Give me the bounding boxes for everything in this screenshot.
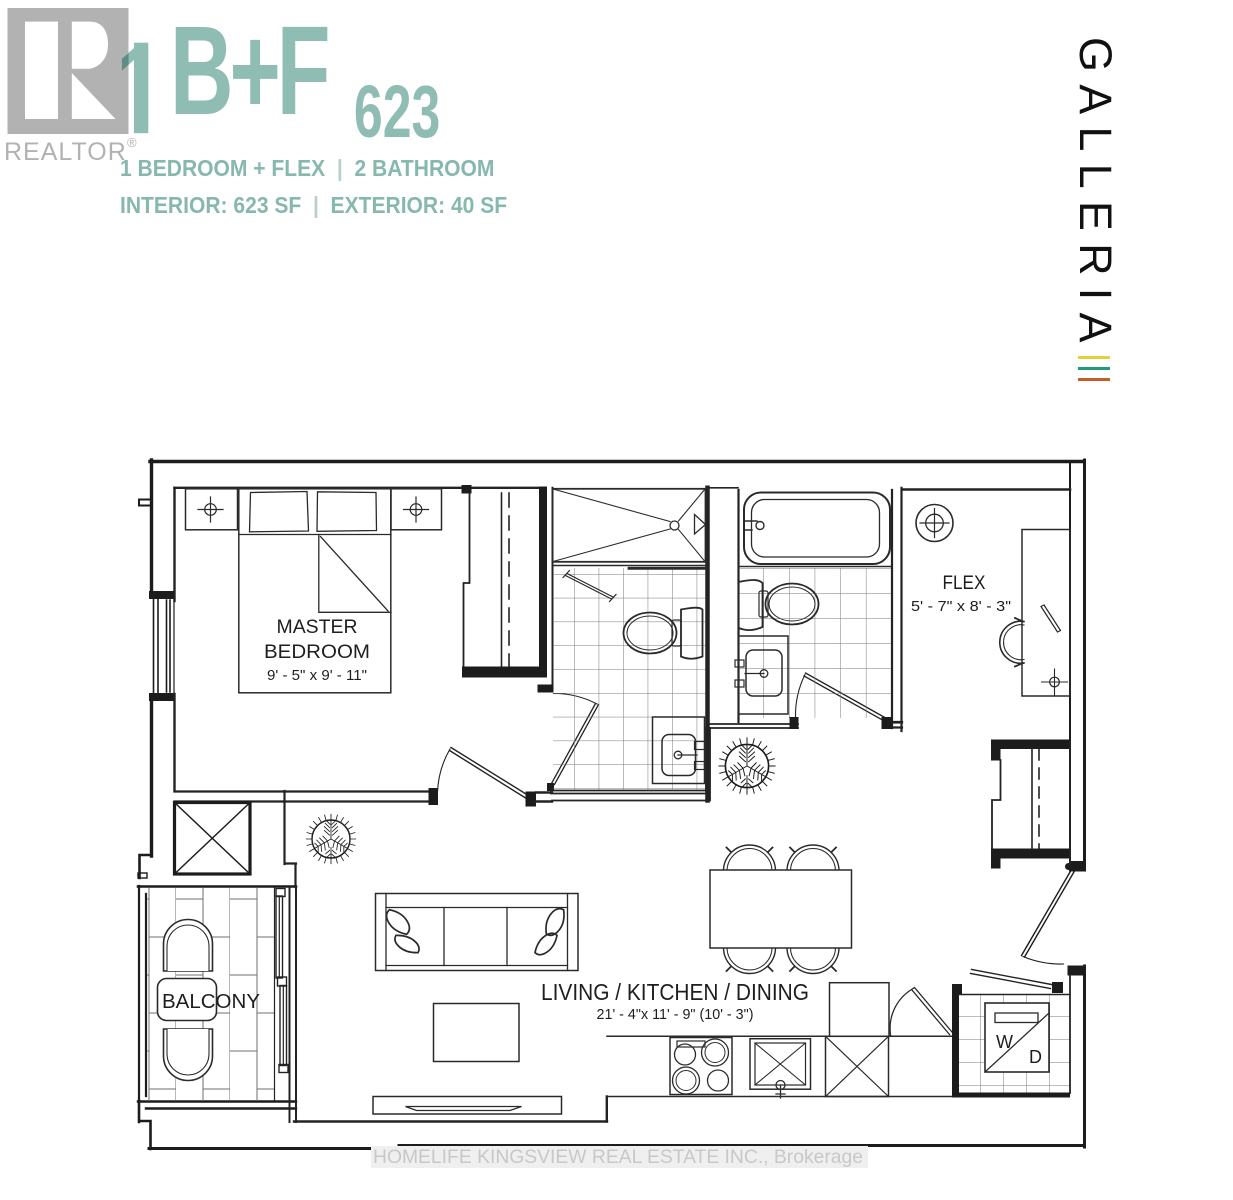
svg-text:5' - 7" x 8' - 3": 5' - 7" x 8' - 3" xyxy=(911,599,1011,615)
svg-text:BEDROOM: BEDROOM xyxy=(264,642,370,663)
svg-text:HOMELIFE KINGSVIEW REAL ESTATE: HOMELIFE KINGSVIEW REAL ESTATE INC., Bro… xyxy=(373,1146,863,1168)
svg-text:W: W xyxy=(996,1032,1013,1052)
svg-text:9' - 5" x 9' - 11": 9' - 5" x 9' - 11" xyxy=(267,668,367,684)
svg-text:MASTER: MASTER xyxy=(277,617,358,638)
svg-text:D: D xyxy=(1029,1047,1042,1067)
svg-text:LIVING / KITCHEN / DINING: LIVING / KITCHEN / DINING xyxy=(541,979,809,1005)
svg-text:BALCONY: BALCONY xyxy=(162,991,260,1013)
svg-text:FLEX: FLEX xyxy=(943,573,986,594)
svg-text:21' - 4"x 11' - 9" (10' - 3"): 21' - 4"x 11' - 9" (10' - 3") xyxy=(597,1006,754,1023)
